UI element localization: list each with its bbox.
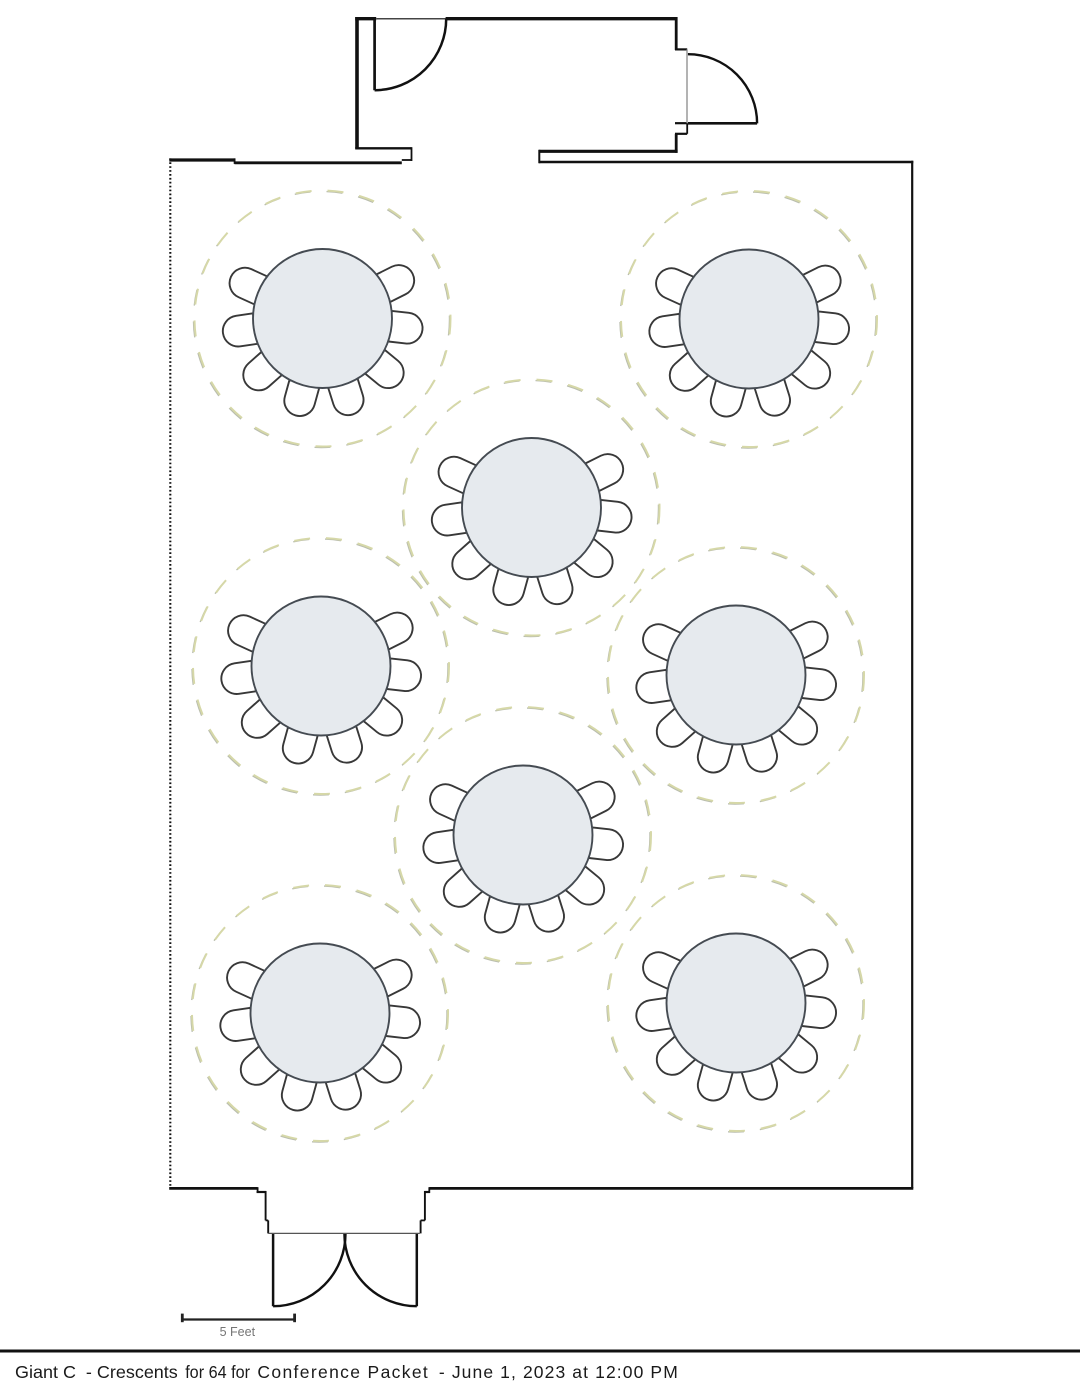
svg-text:Giant C - Crescentsfor 64 for: Giant C - Crescentsfor 64 forConference … <box>15 1362 678 1382</box>
svg-text:5 Feet: 5 Feet <box>220 1324 256 1339</box>
